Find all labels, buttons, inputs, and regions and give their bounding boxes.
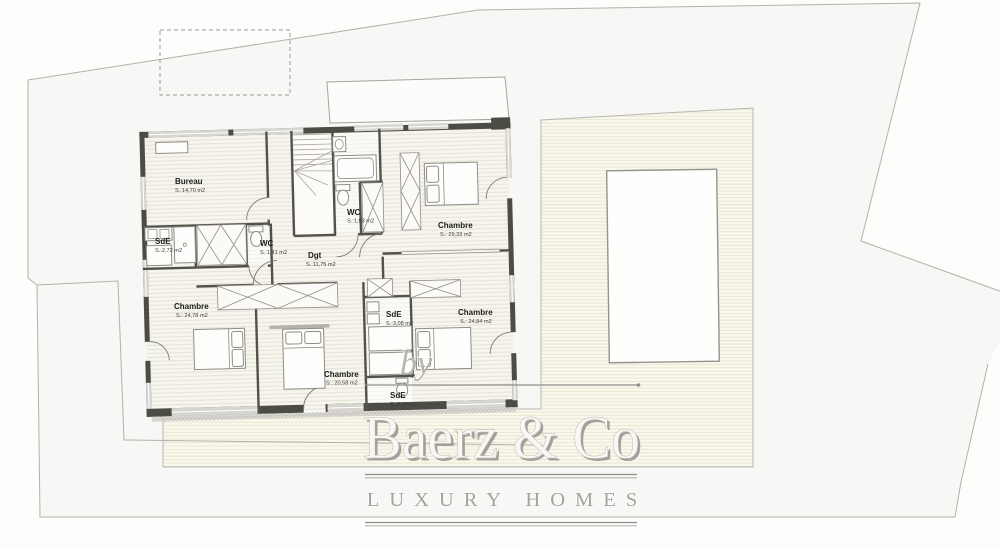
room-area: S.:1,41 m2: [260, 250, 287, 256]
floor-plan-canvas: Bureau S.:14,70 m2 SdE S.:2,72 m2 WC S.:…: [0, 0, 1000, 547]
watermark-by: by: [400, 345, 433, 382]
room-label-chambre-bottom-left: Chambre S.: 24,78 m2: [174, 302, 209, 319]
bed-top-right: [424, 162, 478, 205]
room-area: S.:2,72 m2: [155, 248, 182, 254]
room-name: Chambre: [458, 308, 493, 317]
room-name: Chambre: [324, 370, 359, 379]
annex-outline: [327, 77, 509, 123]
room-area: S.:11,75 m2: [306, 262, 336, 268]
room-area: S.:3,08 m2: [386, 321, 413, 327]
watermark-tagline: LUXURY HOMES: [367, 489, 647, 511]
room-name: Bureau: [175, 177, 203, 186]
room-name: Chambre: [174, 302, 209, 311]
room-name: SdE: [386, 310, 402, 319]
room-name: Chambre: [438, 221, 473, 230]
room-name: Dgt: [308, 251, 322, 260]
sideboard: [156, 142, 188, 154]
sink-sde-middle: [367, 302, 379, 312]
room-label-chambre-bottom-middle: Chambre S.: 20,58 m2: [324, 370, 359, 387]
room-label-chambre-bottom-right: Chambre S.: 24,84 m2: [458, 308, 493, 325]
room-name: SdE: [155, 237, 171, 246]
floor-plan-page: Bureau S.:14,70 m2 SdE S.:2,72 m2 WC S.:…: [0, 0, 1000, 547]
shower-sde-left: [174, 227, 196, 264]
room-area: S.:1,83 m2: [347, 219, 374, 225]
room-label-bureau: Bureau S.:14,70 m2: [175, 177, 205, 194]
room-label-chambre-top-right: Chambre S.: 29,33 m2: [438, 221, 473, 238]
stairs: [292, 130, 336, 236]
watermark-bottom-rule: [365, 523, 637, 526]
room-area: S.: 24,78 m2: [176, 313, 208, 319]
room-name: WC: [347, 208, 361, 217]
room-name: WC: [260, 239, 274, 248]
room-area: S.: 29,33 m2: [440, 232, 472, 238]
pool: [607, 169, 720, 363]
room-area: S.: 24,84 m2: [460, 319, 492, 325]
watermark-brand: Baerz & Co: [363, 405, 640, 472]
room-area: S.: 20,58 m2: [326, 381, 358, 387]
room-area: S.:14,70 m2: [175, 188, 205, 194]
bed-bottom-left: [194, 328, 246, 369]
room-name: SdE: [390, 391, 406, 400]
